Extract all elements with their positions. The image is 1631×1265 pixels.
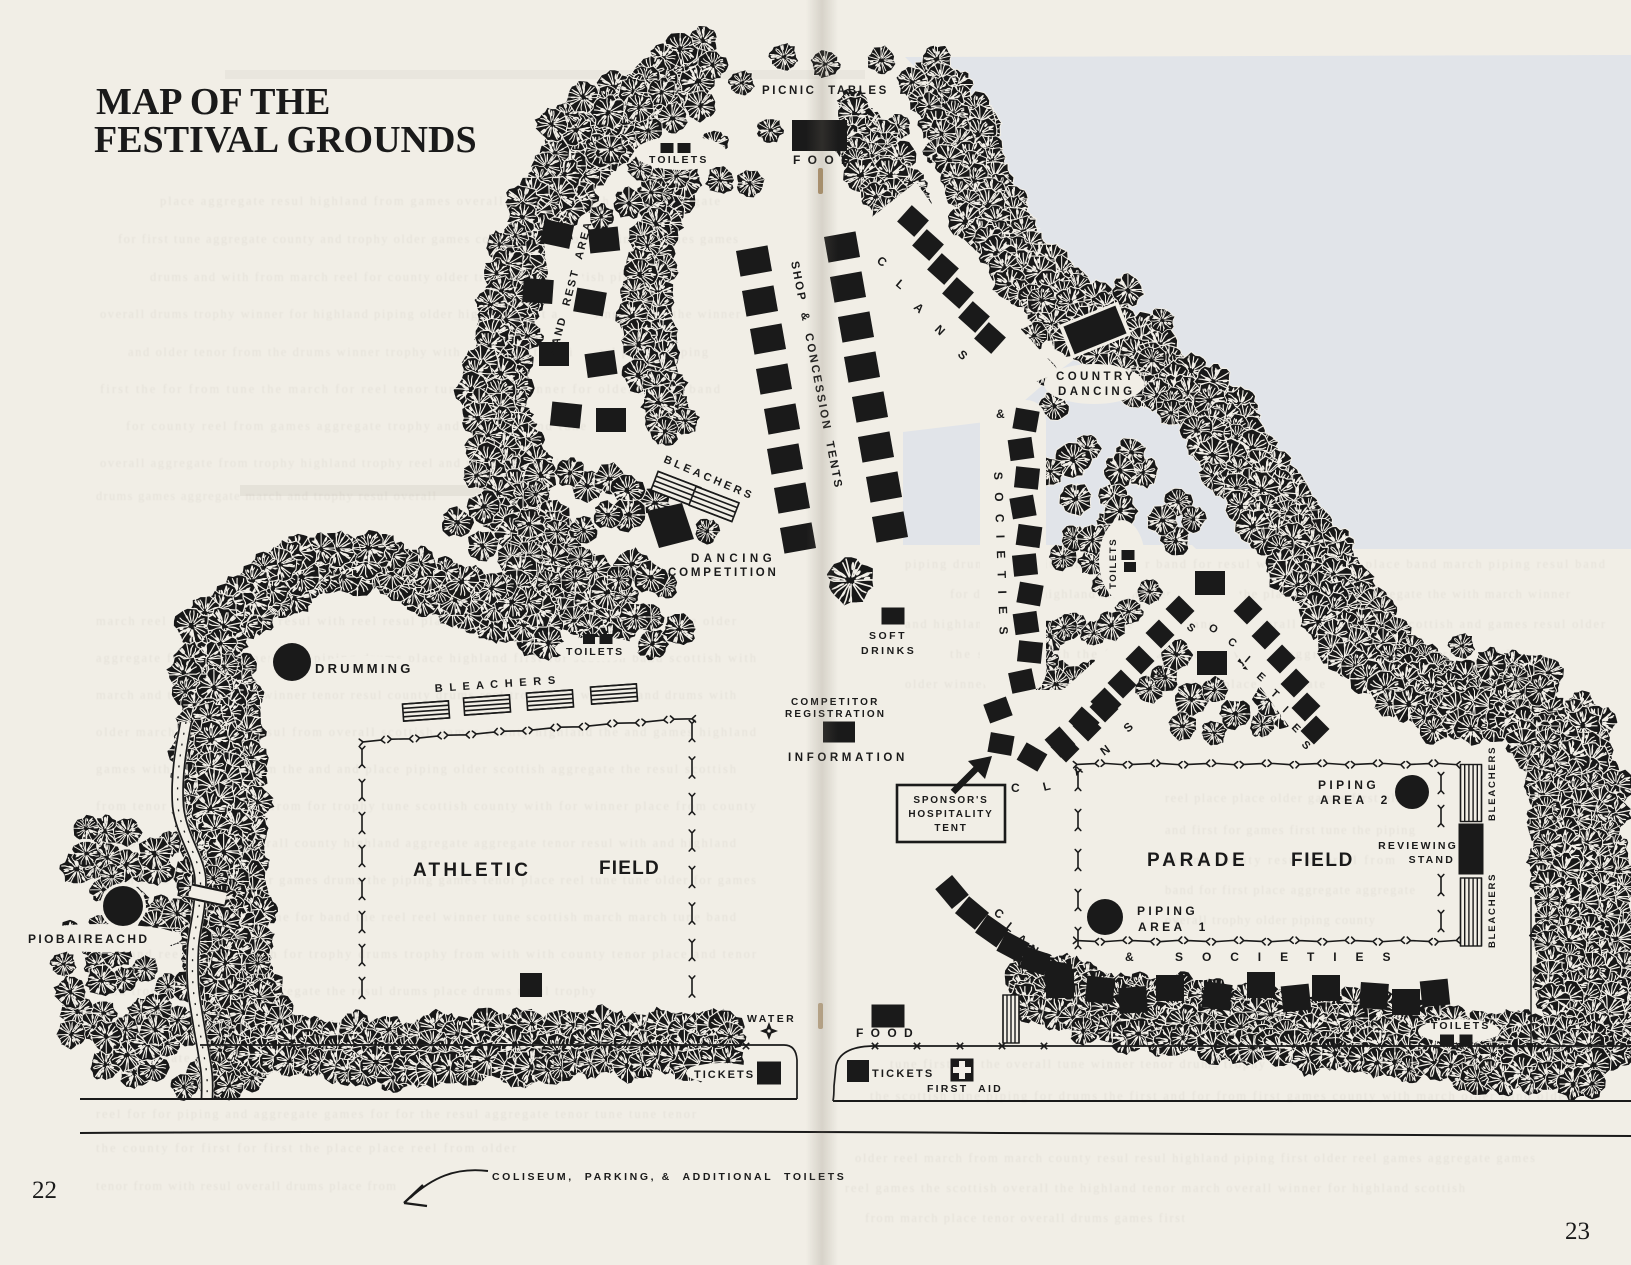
svg-text:COMPETITION: COMPETITION — [668, 567, 779, 579]
svg-text:DRINKS: DRINKS — [861, 645, 916, 657]
svg-text:WATER: WATER — [747, 1013, 796, 1025]
svg-text:TENT: TENT — [934, 823, 967, 834]
svg-text:COLISEUM, PARKING, & ADDITIO: COLISEUM, PARKING, & ADDITIONAL TOILETS — [492, 1171, 846, 1183]
svg-text:FIRST AID: FIRST AID — [927, 1083, 1003, 1095]
svg-text:and first for games first tune: and first for games first tune the pipin… — [1165, 823, 1416, 837]
svg-text:STAND: STAND — [1409, 854, 1455, 866]
svg-text:INFORMATION: INFORMATION — [788, 752, 908, 764]
svg-text:FESTIVAL GROUNDS: FESTIVAL GROUNDS — [94, 119, 477, 161]
svg-text:S O C I E T I E S: S O C I E T I E S — [1175, 950, 1398, 964]
svg-text:&: & — [1125, 950, 1134, 964]
svg-text:BLEACHERS: BLEACHERS — [1487, 873, 1498, 948]
svg-text:22: 22 — [32, 1177, 57, 1204]
svg-text:older reel march from march co: older reel march from march county resul… — [855, 1151, 1535, 1165]
svg-text:FIELD: FIELD — [599, 858, 660, 879]
svg-text:PIOBAIREACHD: PIOBAIREACHD — [28, 932, 149, 946]
svg-text:DANCING: DANCING — [1058, 386, 1135, 398]
svg-text:band for first place aggregate: band for first place aggregate aggregate — [1165, 883, 1415, 897]
svg-text:AREA 1: AREA 1 — [1138, 920, 1209, 934]
svg-text:23: 23 — [1565, 1218, 1590, 1245]
svg-text:MAP OF THE: MAP OF THE — [96, 81, 330, 123]
svg-text:from march place tenor overall: from march place tenor overall drums gam… — [865, 1211, 1186, 1225]
svg-text:HOSPITALITY: HOSPITALITY — [908, 809, 993, 820]
svg-text:PIPING: PIPING — [1137, 904, 1198, 918]
svg-text:SOFT: SOFT — [869, 630, 907, 642]
svg-text:AREA 2: AREA 2 — [1320, 793, 1391, 807]
svg-text:DRUMMING: DRUMMING — [315, 661, 414, 676]
svg-text:and older tenor from the drums: and older tenor from the drums winner tr… — [128, 345, 709, 359]
svg-text:TOILETS: TOILETS — [1431, 1020, 1491, 1032]
svg-text:TICKETS: TICKETS — [694, 1069, 755, 1081]
svg-text:F O O D: F O O D — [856, 1026, 915, 1040]
svg-text:&: & — [1156, 665, 1165, 679]
svg-text:the county for first for first: the county for first for first the place… — [96, 1141, 517, 1155]
svg-text:tenor from with resul overall: tenor from with resul overall drums plac… — [96, 1179, 396, 1193]
svg-text:PARADE: PARADE — [1147, 850, 1249, 871]
svg-text:TOILETS: TOILETS — [566, 646, 624, 658]
svg-text:REVIEWING: REVIEWING — [1378, 840, 1458, 852]
svg-text:C: C — [1011, 781, 1020, 795]
svg-text:COUNTRY: COUNTRY — [1056, 371, 1136, 383]
svg-text:PIPING: PIPING — [1318, 778, 1379, 792]
svg-text:reel games the scottish overal: reel games the scottish overall the high… — [845, 1181, 1466, 1195]
svg-text:DANCING: DANCING — [691, 553, 776, 565]
svg-text:FIELD: FIELD — [1291, 850, 1354, 871]
svg-text:TOILETS: TOILETS — [649, 154, 709, 166]
svg-text:TOILETS: TOILETS — [1108, 538, 1119, 589]
svg-text:ATHLETIC: ATHLETIC — [413, 860, 531, 881]
svg-text:SPONSOR'S: SPONSOR'S — [913, 795, 988, 806]
svg-text:&: & — [996, 407, 1005, 421]
svg-text:BLEACHERS: BLEACHERS — [1487, 746, 1498, 821]
svg-text:TICKETS: TICKETS — [872, 1068, 934, 1080]
